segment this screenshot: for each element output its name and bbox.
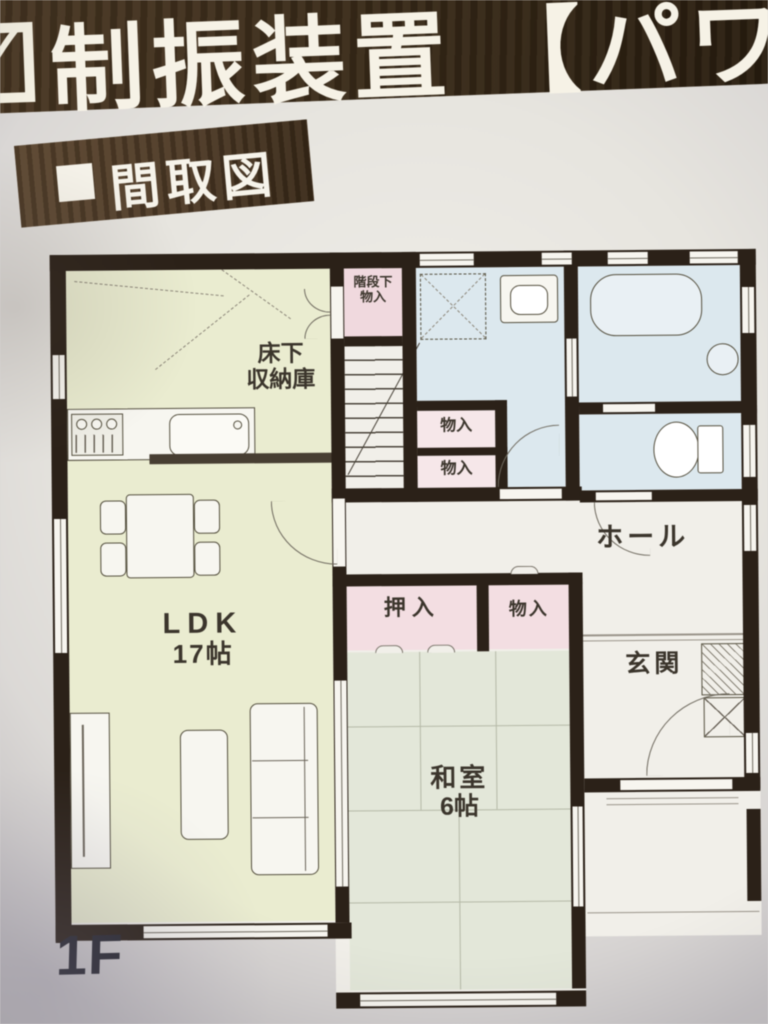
label-ldk: LDK 17帖	[141, 607, 266, 670]
label-kaidanshita: 階段下 物入	[344, 275, 402, 305]
toilet-bowl	[653, 421, 699, 477]
window	[608, 252, 648, 264]
window	[746, 733, 758, 773]
dining-table	[126, 494, 195, 579]
window	[144, 925, 328, 939]
dining-chair	[194, 500, 220, 534]
wall	[747, 809, 762, 901]
stove-burner	[91, 419, 102, 430]
label-genkan: 玄関	[625, 650, 683, 679]
wall	[417, 447, 507, 456]
door-opening	[331, 287, 343, 339]
label-yukashita: 床下 収納庫	[228, 341, 332, 393]
faucet	[233, 420, 242, 429]
sofa	[250, 703, 319, 876]
door-opening	[603, 404, 655, 412]
label-monoire-hall: 物入	[489, 599, 569, 620]
window	[360, 993, 556, 1007]
window	[743, 425, 755, 477]
washbasin-bowl	[510, 285, 548, 315]
bath-door	[566, 338, 577, 396]
floor-label: 1F	[55, 921, 124, 988]
stove-burner	[76, 419, 87, 430]
window	[542, 253, 572, 265]
door-opening	[596, 492, 652, 500]
bathtub	[590, 273, 703, 336]
stove-burner	[106, 419, 117, 430]
stairs	[344, 346, 403, 489]
magazine-photo: ✓ 制振装置 【パワ 間取図	[0, 0, 768, 1024]
check-mark-icon: ✓	[0, 6, 35, 94]
fusuma-mark	[510, 566, 538, 574]
section-banner: 間取図	[14, 119, 314, 227]
wall	[332, 572, 582, 586]
shoe-cabinet	[701, 643, 747, 695]
dining-chair	[194, 542, 220, 576]
section-title: 間取図	[107, 134, 281, 221]
entrance-door-opening	[620, 779, 732, 790]
toilet-tank	[697, 425, 723, 473]
bullet-square-icon	[56, 163, 95, 202]
window	[742, 287, 754, 333]
header-title: 制振装置 【パワ	[47, 0, 768, 131]
tv-board	[70, 713, 111, 869]
window	[54, 519, 67, 653]
coffee-table	[180, 730, 229, 840]
porch	[584, 789, 761, 915]
wall	[402, 252, 418, 502]
wall	[477, 577, 490, 651]
label-monoire-upper: 物入	[417, 417, 495, 436]
window	[420, 253, 474, 265]
checkbox-icon: ✓	[0, 22, 35, 105]
window	[744, 505, 756, 551]
window	[690, 251, 738, 263]
fusuma-mark	[427, 645, 455, 653]
label-oshiire: 押入	[347, 595, 477, 621]
wall	[344, 336, 402, 347]
window	[573, 806, 584, 906]
header-banner: ✓ 制振装置 【パワ	[0, 0, 768, 114]
dining-chair	[100, 500, 126, 534]
label-washitsu: 和室 6帖	[398, 763, 520, 821]
window	[53, 355, 65, 399]
shower-stool	[706, 343, 738, 375]
sliding-door	[334, 681, 348, 887]
fusuma-mark	[375, 645, 403, 653]
label-monoire-lower: 物入	[417, 460, 495, 479]
washer-pan	[420, 273, 487, 340]
wall	[417, 400, 507, 411]
door-opening	[500, 489, 562, 500]
counter-edge	[149, 453, 333, 465]
label-hall: ホール	[596, 522, 689, 553]
dining-chair	[100, 542, 126, 576]
stove-grill	[75, 434, 119, 452]
floor-plan: 床下 収納庫 階段下 物入 物入 物入 ホール 押入 物入 玄関 LDK 17帖…	[42, 245, 768, 1023]
